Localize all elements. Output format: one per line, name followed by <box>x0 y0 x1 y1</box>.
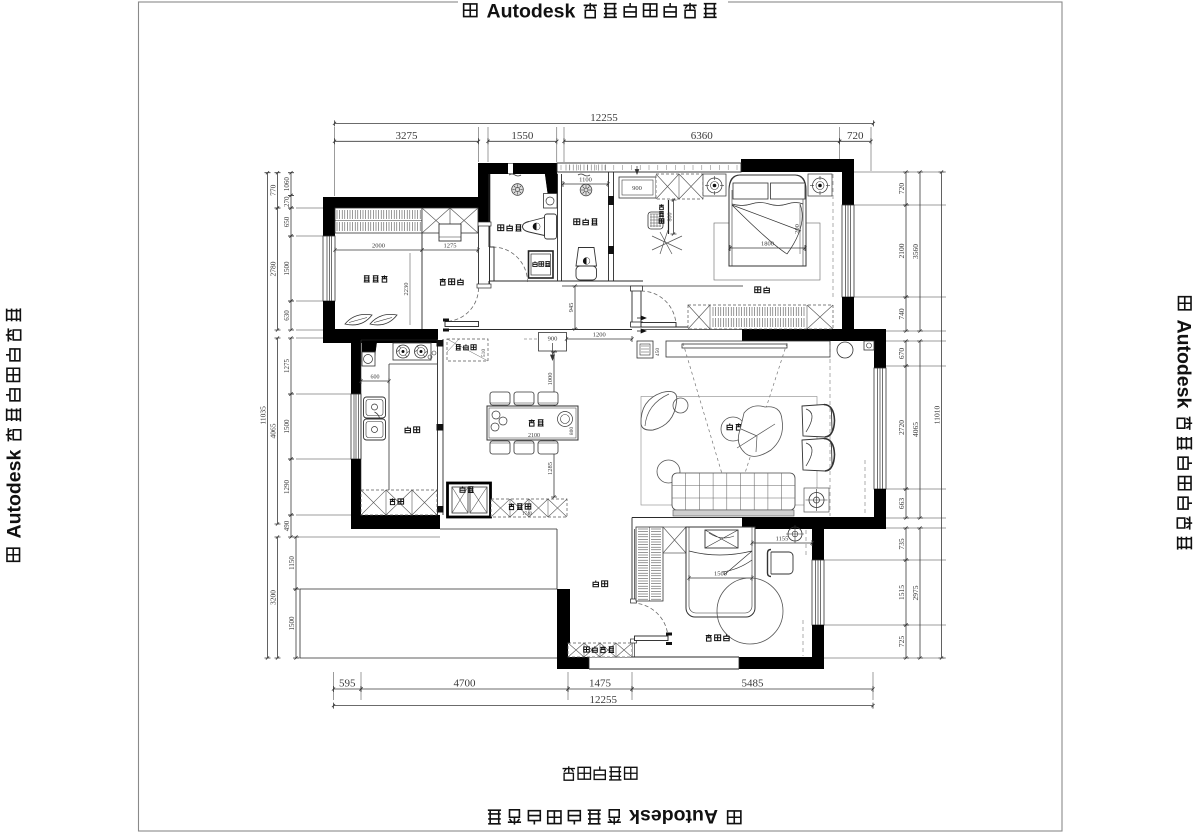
svg-text:1500: 1500 <box>283 261 291 276</box>
svg-text:2720: 2720 <box>897 420 906 435</box>
svg-text:200: 200 <box>794 224 801 234</box>
svg-text:1475: 1475 <box>589 678 612 690</box>
svg-text:1275: 1275 <box>444 243 457 250</box>
svg-text:5485: 5485 <box>742 678 765 690</box>
svg-text:1100: 1100 <box>579 177 592 184</box>
svg-text:2780: 2780 <box>269 261 278 276</box>
svg-text:Autodesk: Autodesk <box>487 1 576 23</box>
svg-text:12255: 12255 <box>590 112 618 124</box>
svg-text:3275: 3275 <box>396 130 419 142</box>
svg-text:1500: 1500 <box>288 616 296 631</box>
svg-text:945: 945 <box>568 303 575 313</box>
svg-text:3560: 3560 <box>911 244 920 259</box>
svg-text:663: 663 <box>897 498 906 510</box>
svg-text:1800: 1800 <box>761 241 774 248</box>
svg-text:Autodesk: Autodesk <box>4 450 26 539</box>
svg-text:770: 770 <box>269 184 278 196</box>
svg-text:1290: 1290 <box>283 480 291 495</box>
svg-text:4065: 4065 <box>911 422 920 437</box>
svg-text:Autodesk: Autodesk <box>629 805 718 827</box>
svg-text:670: 670 <box>897 348 906 360</box>
svg-text:11010: 11010 <box>933 406 942 425</box>
svg-text:2000: 2000 <box>372 243 385 250</box>
svg-text:3200: 3200 <box>269 590 278 605</box>
svg-text:510: 510 <box>481 349 487 358</box>
svg-text:2100: 2100 <box>897 243 906 258</box>
svg-text:4700: 4700 <box>454 678 477 690</box>
svg-text:1200: 1200 <box>593 332 606 339</box>
svg-text:2230: 2230 <box>403 283 410 296</box>
svg-text:900: 900 <box>632 185 642 192</box>
svg-text:Autodesk: Autodesk <box>1173 320 1195 409</box>
svg-text:720: 720 <box>897 183 906 195</box>
svg-text:1000: 1000 <box>547 373 554 386</box>
svg-text:270: 270 <box>283 196 291 207</box>
svg-text:595: 595 <box>339 678 356 690</box>
svg-text:725: 725 <box>897 636 906 648</box>
svg-text:630: 630 <box>283 310 291 321</box>
svg-text:600: 600 <box>371 375 380 381</box>
svg-text:735: 735 <box>897 538 906 550</box>
svg-text:2100: 2100 <box>528 433 540 439</box>
svg-text:1740: 1740 <box>522 512 533 517</box>
svg-text:900: 900 <box>548 336 558 343</box>
svg-text:2975: 2975 <box>911 585 920 600</box>
svg-text:1500: 1500 <box>283 419 291 434</box>
svg-text:1515: 1515 <box>897 585 906 600</box>
svg-text:1155: 1155 <box>776 536 789 543</box>
svg-text:12255: 12255 <box>589 694 617 706</box>
svg-text:1060: 1060 <box>283 177 291 192</box>
svg-text:800: 800 <box>569 427 575 436</box>
svg-text:1285: 1285 <box>547 462 554 475</box>
svg-text:740: 740 <box>897 308 906 320</box>
svg-text:800: 800 <box>668 213 674 222</box>
svg-text:720: 720 <box>847 130 864 142</box>
svg-text:11035: 11035 <box>259 406 268 425</box>
svg-text:450: 450 <box>655 348 661 357</box>
svg-text:6360: 6360 <box>691 130 714 142</box>
svg-text:4065: 4065 <box>269 423 278 438</box>
svg-text:650: 650 <box>283 216 291 227</box>
svg-text:1500: 1500 <box>714 571 727 578</box>
svg-text:1150: 1150 <box>288 556 296 570</box>
svg-text:1550: 1550 <box>511 130 534 142</box>
svg-text:1275: 1275 <box>283 359 291 374</box>
svg-text:490: 490 <box>283 520 291 531</box>
